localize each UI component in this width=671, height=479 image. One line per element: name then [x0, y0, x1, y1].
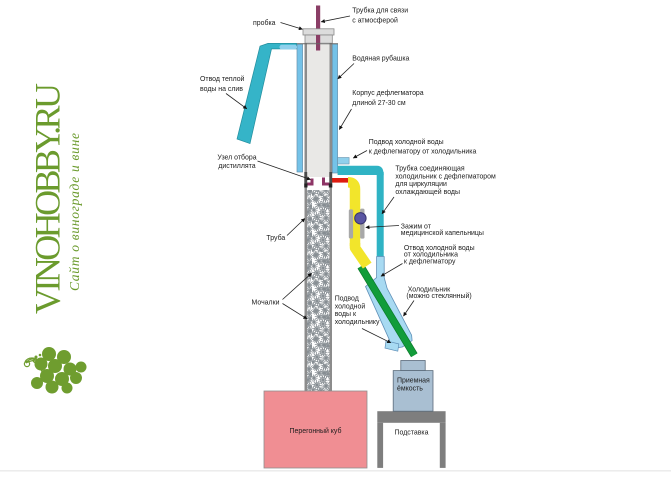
- svg-text:медицинской капельницы: медицинской капельницы: [401, 229, 484, 237]
- svg-text:Трубка для связи: Трубка для связи: [352, 7, 408, 15]
- svg-text:Узел отбора: Узел отбора: [217, 153, 256, 161]
- svg-text:дистиллята: дистиллята: [218, 163, 255, 170]
- svg-text:охлаждающей воды: охлаждающей воды: [395, 188, 460, 196]
- svg-text:Подставка: Подставка: [395, 430, 429, 437]
- svg-text:пробка: пробка: [253, 19, 276, 27]
- svg-text:к дефлегматору от холодильника: к дефлегматору от холодильника: [369, 149, 477, 156]
- svg-text:с атмосферой: с атмосферой: [352, 17, 398, 25]
- svg-text:Труба: Труба: [266, 234, 285, 242]
- svg-text:для циркуляции: для циркуляции: [395, 181, 447, 188]
- svg-text:VINOHOBBY.RU: VINOHOBBY.RU: [28, 83, 68, 314]
- svg-text:Подвод холодной воды: Подвод холодной воды: [369, 138, 444, 146]
- svg-text:ёмкость: ёмкость: [397, 385, 423, 392]
- svg-text:холодильнику: холодильнику: [335, 319, 380, 326]
- svg-text:Подвод: Подвод: [335, 296, 359, 303]
- svg-text:холодильник с дефлегматором: холодильник с дефлегматором: [395, 173, 496, 180]
- svg-text:Сайт о винограде и вине: Сайт о винограде и вине: [67, 133, 82, 291]
- svg-text:холодной: холодной: [335, 302, 366, 310]
- svg-text:Водяная рубашка: Водяная рубашка: [352, 55, 409, 63]
- svg-text:Корпус дефлегматора: Корпус дефлегматора: [352, 90, 423, 97]
- svg-text:Отвод теплой: Отвод теплой: [200, 75, 245, 83]
- svg-text:Приемная: Приемная: [397, 378, 430, 385]
- svg-text:(можно стеклянный): (можно стеклянный): [406, 292, 471, 300]
- svg-text:Перегонный куб: Перегонный куб: [290, 427, 342, 435]
- svg-text:Трубка соединяющая: Трубка соединяющая: [395, 165, 465, 173]
- svg-text:воды на слив: воды на слив: [200, 86, 243, 93]
- svg-text:воды к: воды к: [335, 311, 357, 318]
- svg-text:к дефлегматору: к дефлегматору: [404, 258, 456, 265]
- svg-text:длиной 27-30 см: длиной 27-30 см: [352, 99, 406, 107]
- svg-text:Мочалки: Мочалки: [252, 299, 280, 306]
